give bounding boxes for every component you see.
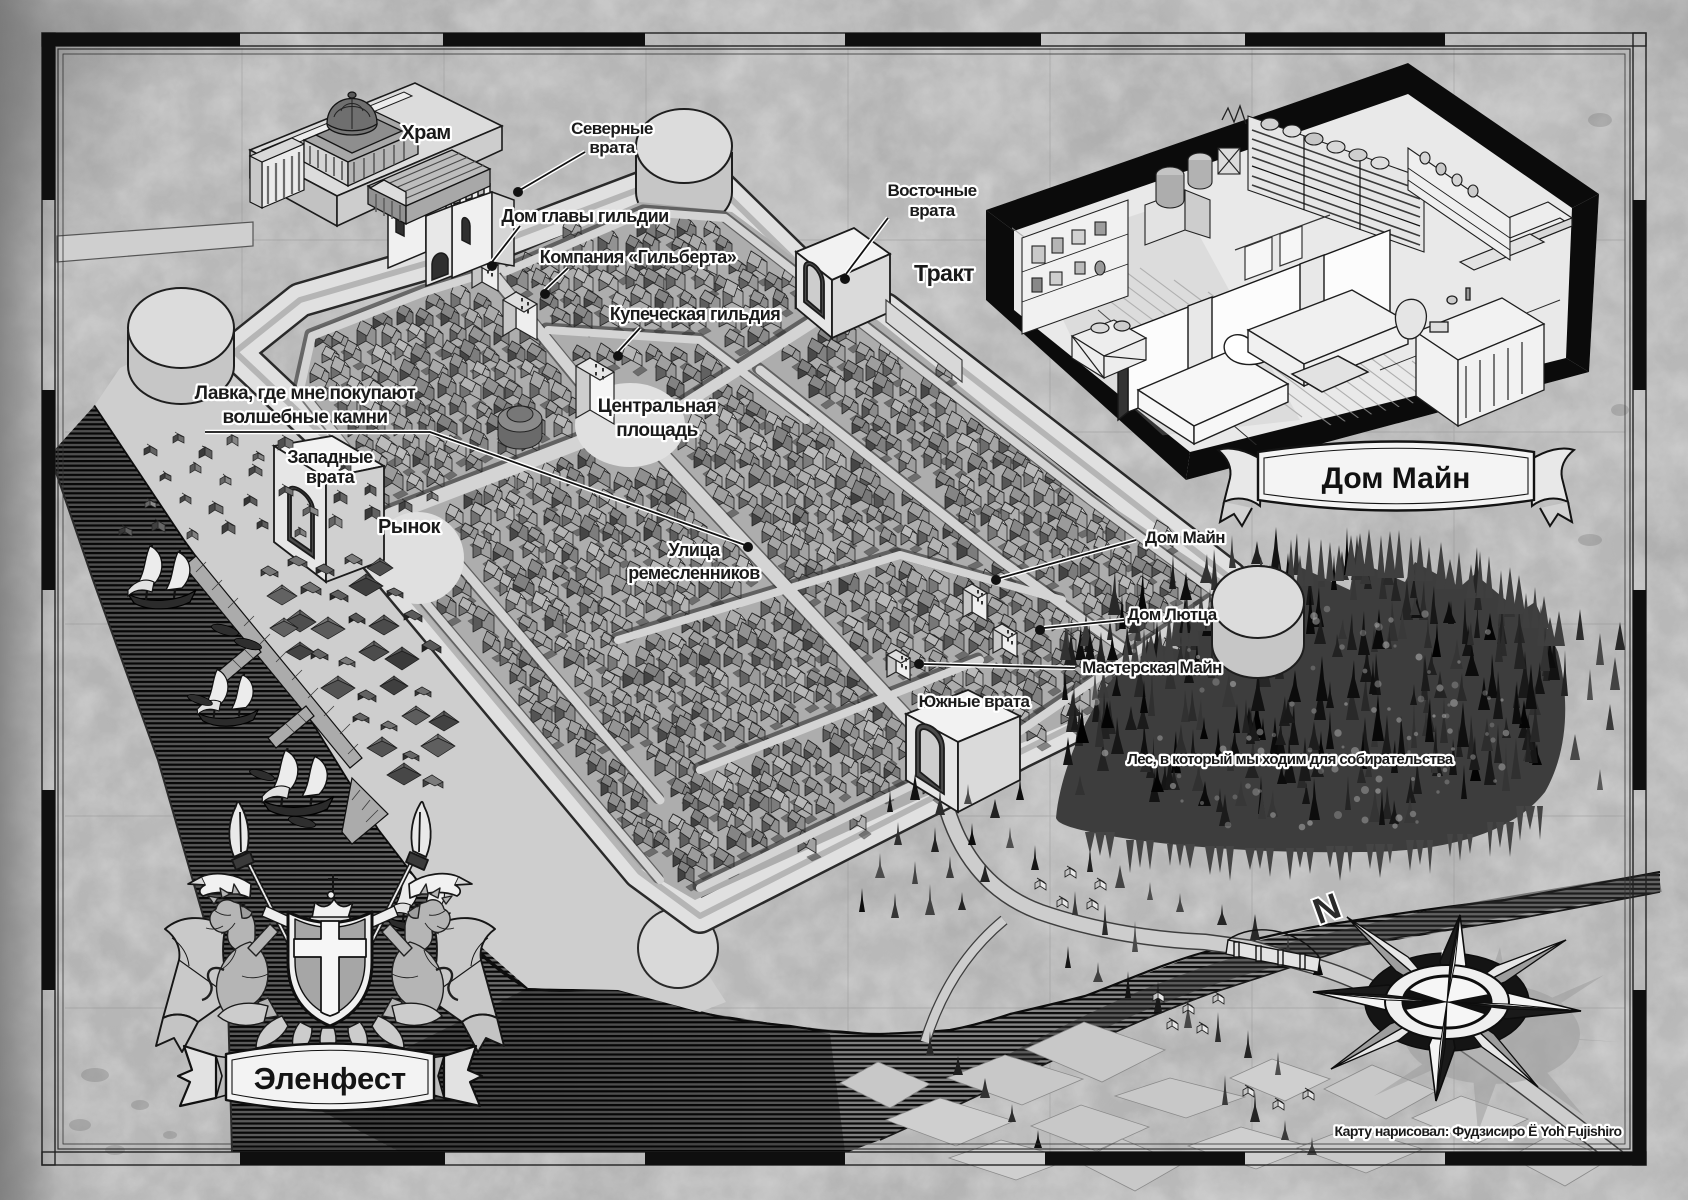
svg-text:Улица: Улица [668, 540, 721, 560]
svg-text:Храм: Храм [401, 122, 450, 144]
svg-text:Дом главы гильдии: Дом главы гильдии [501, 206, 668, 226]
svg-text:Восточные: Восточные [887, 181, 976, 200]
svg-text:Дом Лютца: Дом Лютца [1127, 605, 1217, 624]
svg-text:Рынок: Рынок [378, 516, 442, 538]
svg-text:Северные: Северные [571, 119, 653, 138]
svg-text:врата: врата [909, 201, 955, 220]
svg-text:врата: врата [306, 467, 356, 487]
svg-text:Карту нарисовал: Фудзисиро Ё: Карту нарисовал: Фудзисиро Ё Yoh Fujishi… [1334, 1123, 1621, 1139]
svg-text:Дом Майн: Дом Майн [1322, 462, 1471, 495]
svg-text:Купеческая гильдия: Купеческая гильдия [610, 304, 780, 324]
svg-text:волшебные камни: волшебные камни [222, 407, 387, 428]
svg-text:Компания «Гильберта»: Компания «Гильберта» [540, 247, 737, 267]
svg-text:Тракт: Тракт [914, 260, 974, 286]
svg-text:Мастерская Майн: Мастерская Майн [1082, 658, 1222, 677]
svg-text:врата: врата [589, 138, 635, 157]
svg-text:Лес, в который мы ходим для со: Лес, в который мы ходим для собирательст… [1127, 751, 1454, 768]
svg-text:Дом Майн: Дом Майн [1145, 528, 1225, 547]
svg-text:Лавка, где мне покупают: Лавка, где мне покупают [195, 383, 416, 404]
svg-text:Южные врата: Южные врата [919, 692, 1031, 711]
svg-text:Центральная: Центральная [598, 396, 716, 417]
svg-text:Эленфест: Эленфест [254, 1061, 407, 1096]
svg-text:Западные: Западные [287, 447, 373, 467]
svg-text:ремесленников: ремесленников [628, 563, 760, 583]
svg-text:площадь: площадь [616, 420, 698, 441]
